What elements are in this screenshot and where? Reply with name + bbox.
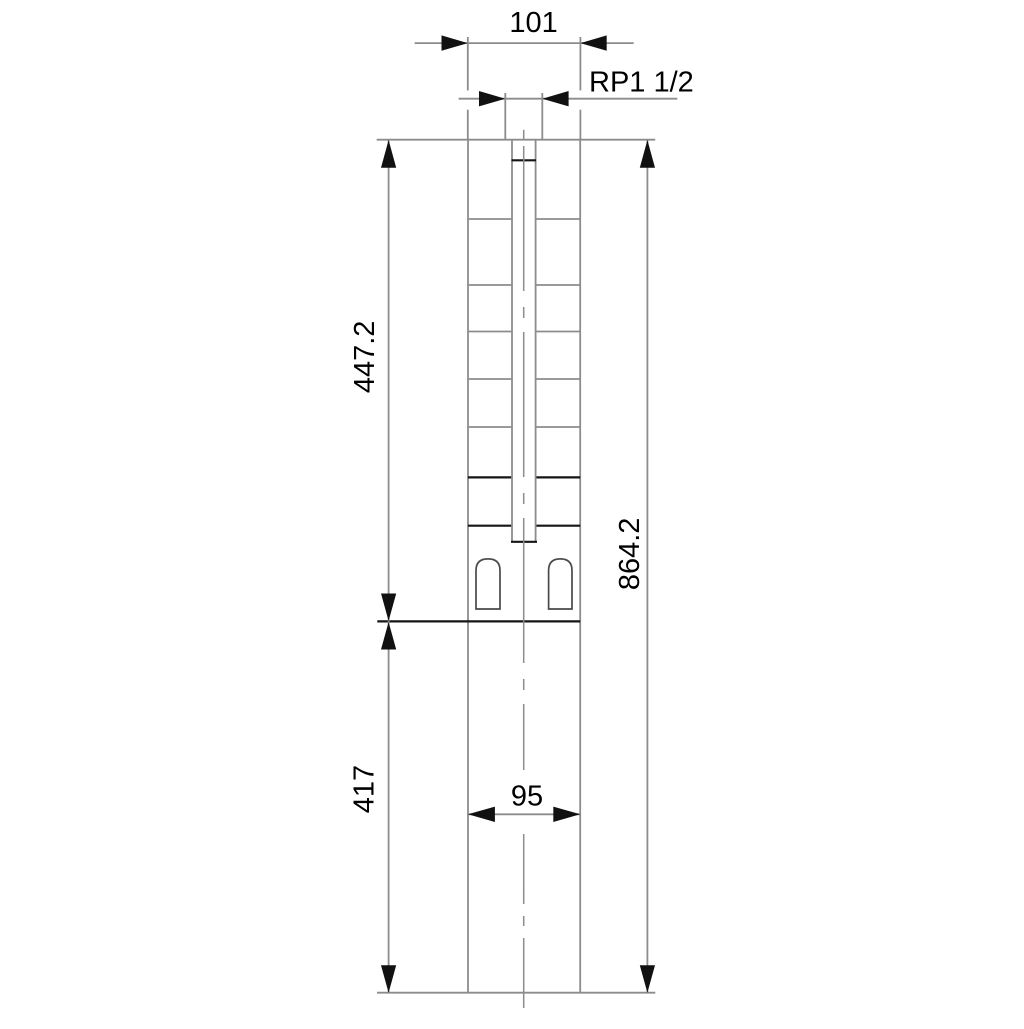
svg-text:95: 95 [511, 781, 543, 813]
svg-text:417: 417 [349, 765, 381, 813]
svg-text:864.2: 864.2 [614, 518, 646, 591]
svg-text:RP1 1/2: RP1 1/2 [589, 67, 694, 99]
svg-text:101: 101 [509, 7, 557, 39]
svg-text:447.2: 447.2 [349, 321, 381, 394]
